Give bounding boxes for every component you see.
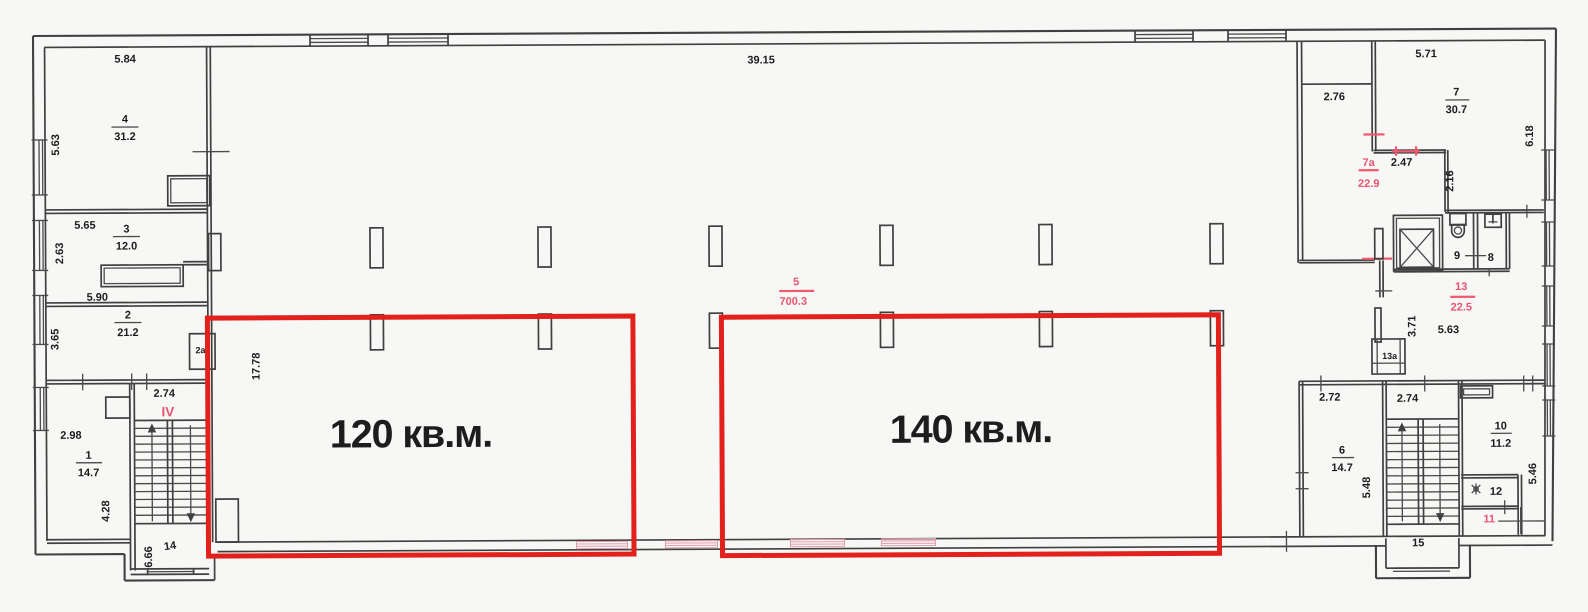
svg-text:15: 15 [1412, 537, 1424, 549]
svg-text:2.72: 2.72 [1319, 392, 1340, 404]
svg-text:6.18: 6.18 [1524, 125, 1536, 146]
svg-text:7а: 7а [1362, 157, 1375, 169]
svg-text:700.3: 700.3 [780, 296, 808, 308]
svg-text:30.7: 30.7 [1446, 104, 1467, 116]
svg-text:5.65: 5.65 [74, 220, 95, 232]
svg-text:2.74: 2.74 [154, 388, 176, 400]
svg-text:140 кв.м.: 140 кв.м. [890, 407, 1052, 452]
svg-text:2.16: 2.16 [1444, 170, 1456, 191]
svg-text:9: 9 [1454, 250, 1460, 262]
svg-text:3.71: 3.71 [1406, 316, 1418, 337]
svg-text:17.78: 17.78 [251, 353, 263, 381]
svg-text:10: 10 [1495, 420, 1507, 432]
svg-text:5.63: 5.63 [50, 134, 62, 155]
svg-text:5.48: 5.48 [1361, 477, 1373, 498]
svg-text:5: 5 [793, 276, 799, 288]
svg-text:13а: 13а [1382, 351, 1398, 361]
svg-text:5.71: 5.71 [1415, 48, 1436, 60]
svg-text:7: 7 [1453, 87, 1459, 99]
svg-text:2.76: 2.76 [1324, 91, 1345, 103]
svg-text:12.0: 12.0 [116, 240, 137, 252]
svg-text:6: 6 [1339, 445, 1345, 457]
svg-text:8: 8 [1488, 252, 1494, 264]
svg-text:3: 3 [123, 224, 129, 236]
svg-text:6.66: 6.66 [143, 546, 155, 567]
svg-text:39.15: 39.15 [747, 54, 775, 66]
svg-text:5.84: 5.84 [114, 53, 136, 65]
svg-text:4: 4 [122, 114, 129, 126]
svg-text:2.74: 2.74 [1397, 393, 1419, 405]
svg-text:5.90: 5.90 [87, 292, 108, 304]
svg-text:2: 2 [125, 310, 131, 322]
svg-text:2.47: 2.47 [1391, 157, 1412, 169]
svg-text:5.46: 5.46 [1527, 463, 1539, 484]
svg-text:12: 12 [1490, 486, 1502, 498]
svg-text:3.65: 3.65 [49, 329, 61, 350]
svg-text:5.63: 5.63 [1438, 324, 1459, 336]
svg-text:2a: 2a [196, 345, 207, 355]
svg-text:4.28: 4.28 [100, 500, 112, 521]
svg-text:22.5: 22.5 [1451, 301, 1472, 313]
svg-text:2.63: 2.63 [54, 243, 66, 264]
svg-text:21.2: 21.2 [117, 327, 138, 339]
svg-text:11: 11 [1483, 513, 1495, 525]
svg-text:11.2: 11.2 [1490, 438, 1511, 450]
svg-text:22.9: 22.9 [1358, 178, 1379, 190]
svg-text:1: 1 [85, 450, 91, 462]
svg-text:31.2: 31.2 [114, 131, 135, 143]
svg-text:120 кв.м.: 120 кв.м. [330, 412, 492, 457]
svg-text:14.7: 14.7 [1331, 462, 1352, 474]
svg-text:2.98: 2.98 [60, 430, 81, 442]
svg-text:IV: IV [161, 404, 174, 419]
svg-text:13: 13 [1455, 281, 1467, 293]
svg-text:14.7: 14.7 [78, 467, 99, 479]
